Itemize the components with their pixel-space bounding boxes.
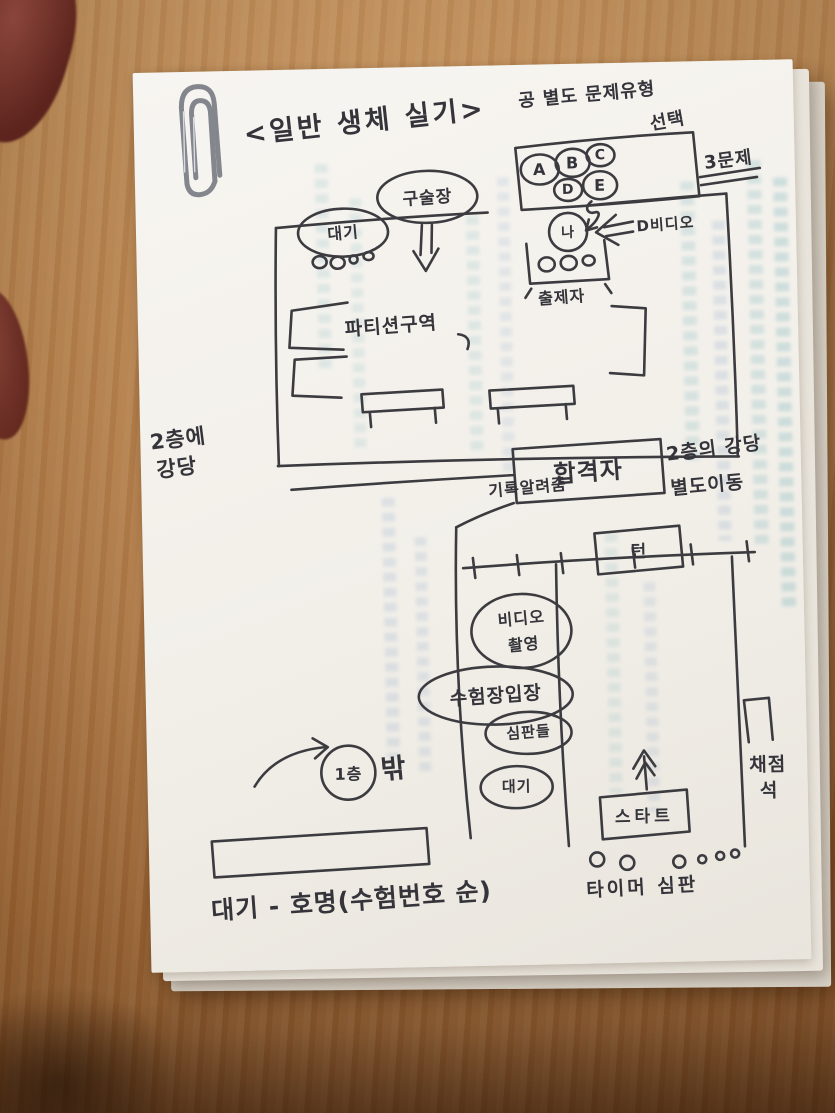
option-a-label: A [533,160,547,179]
video-label-line1: 비디오 [497,603,546,631]
floor1-label: 1층 [334,760,362,785]
partition-bracket-right [609,305,647,376]
video-left-arrow-icon [596,215,634,246]
sketch-strokes [133,59,812,973]
scorer-seat-line1: 채점 [749,749,787,777]
small-table [489,386,575,424]
lane-dot [698,855,706,863]
option-d-label: D [562,182,575,198]
waiting-label-lower: 대기 [502,775,532,797]
examiner-dot [583,255,595,265]
outside-label: 밖 [379,746,408,787]
partition-bracket [292,357,348,399]
judges-label: 심판들 [506,720,552,744]
queue-dot [331,257,345,269]
corner-shadow [0,983,180,1113]
scorer-seat-bracket [744,698,773,743]
me-label: 나 [561,222,575,242]
photo-of-handwritten-floor-plan: <일반 생체 실기> 공 별도 문제유형 선택 A B C D E 3문제 구술… [0,0,835,1113]
option-e-label: E [594,176,606,195]
room-left-wall [273,228,281,466]
room-right-wall [726,193,738,456]
queue-dot [350,255,358,263]
lane-dot [620,856,634,870]
exit-line [291,475,513,490]
waiting-label-upper: 대기 [326,218,359,245]
lane-dot [716,852,724,860]
start-box-label: 스타트 [615,801,674,827]
room-top-wall-right [587,194,726,206]
oral-test-label: 구술장 [401,182,453,211]
examiner-dot [539,257,555,271]
lane-dot [673,856,685,868]
top-sheet: <일반 생체 실기> 공 별도 문제유형 선택 A B C D E 3문제 구술… [133,59,812,973]
oral-down-arrow-icon [413,225,439,272]
scorer-seat-line2: 석 [760,776,779,803]
connector-to-lower [456,503,514,527]
lane-dot [590,852,604,866]
waiting-desk [212,828,430,878]
queue-dot [363,252,373,260]
partition-label-swoosh [458,334,469,349]
curved-arrow-icon [254,738,329,787]
examiner-label: 출제자 [537,282,586,309]
pass-box-label: 합격자 [552,450,624,490]
option-c-label: C [595,147,607,163]
start-up-arrow-icon [633,750,656,789]
paperclip-bottom [187,181,215,195]
examiner-dot [561,256,577,270]
tick-wall [463,552,755,568]
video-label-line2: 촬영 [507,630,540,657]
partition-bracket [289,303,349,351]
queue-dot [313,256,327,268]
video-note-label: D비디오 [636,211,695,236]
turn-box-label: 턴 [630,537,647,562]
lane-dot [731,849,739,857]
paperclip [181,86,220,195]
small-table [361,390,444,428]
option-b-label: B [566,153,580,172]
hall-note-line2: 강당 [155,450,199,485]
